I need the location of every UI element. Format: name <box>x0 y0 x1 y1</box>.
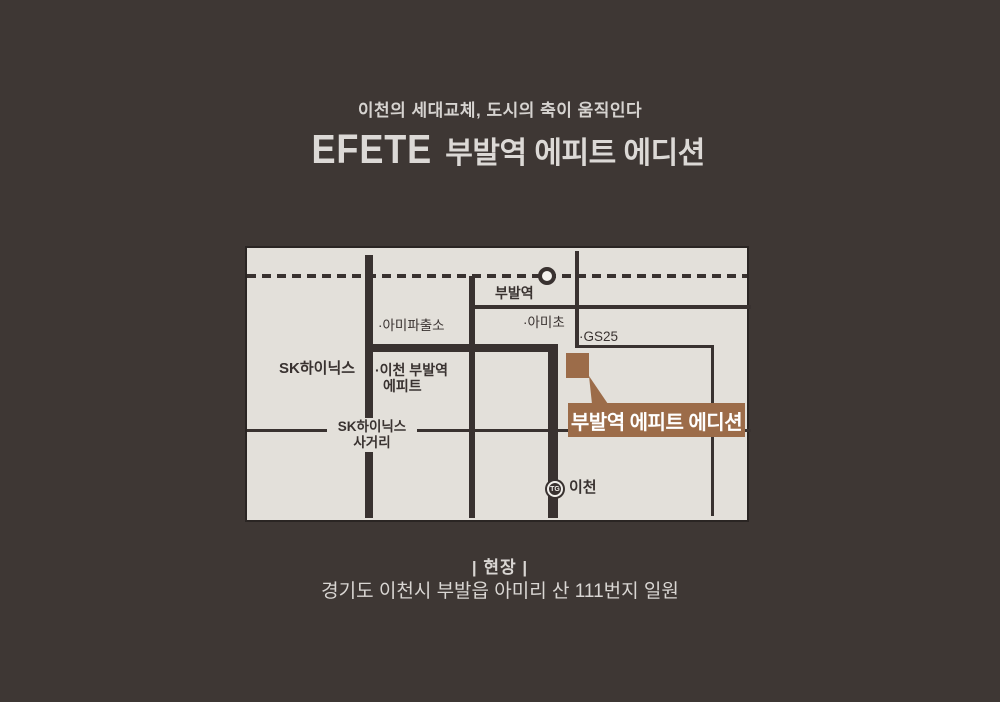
label-bubal-station: 부발역 <box>495 285 534 301</box>
site-callout-badge: 부발역 에피트 에디션 <box>568 403 745 437</box>
section-label: | 현장 | <box>0 553 1000 578</box>
label-gs25: ·GS25 <box>579 329 618 345</box>
label-ami-elementary: ·아미초 <box>523 315 565 331</box>
road-horizontal-east <box>577 345 714 348</box>
station-marker-icon <box>538 267 556 285</box>
label-epit-line1: ·이천 부발역 <box>375 362 448 378</box>
page-title: EFETE 부발역 에피트 에디션 <box>0 126 1000 173</box>
label-epit-complex: ·이천 부발역 에피트 <box>375 362 448 394</box>
label-sk-crossroad: SK하이닉스 사거리 <box>327 418 417 452</box>
tollgate-tg-text: TG <box>547 481 563 497</box>
label-ami-police: ·아미파출소 <box>378 318 445 334</box>
road-horizontal-north <box>469 305 751 309</box>
subtitle-text: 이천의 세대교체, 도시의 축이 움직인다 <box>0 96 1000 121</box>
label-icheon-tollgate: 이천 <box>569 480 597 496</box>
site-address: 경기도 이천시 부발읍 아미리 산 111번지 일원 <box>0 576 1000 603</box>
label-sk-crossroad-line1: SK하이닉스 <box>331 419 413 435</box>
tollgate-icon: TG <box>545 479 565 499</box>
road-horizontal-main <box>365 344 558 352</box>
railway-dashed-line <box>247 274 747 278</box>
label-sk-hynix: SK하이닉스 <box>279 361 355 377</box>
title-korean: 부발역 에피트 에디션 <box>445 128 705 172</box>
label-epit-line2: 에피트 <box>383 378 448 394</box>
site-marker <box>566 353 589 378</box>
location-map: 부발역 ·아미파출소 ·아미초 ·GS25 SK하이닉스 ·이천 부발역 에피트… <box>245 246 749 522</box>
brand-logotype: EFETE <box>312 126 433 173</box>
road-vertical-center <box>469 276 475 518</box>
label-sk-crossroad-line2: 사거리 <box>331 435 413 451</box>
promo-page: 이천의 세대교체, 도시의 축이 움직인다 EFETE 부발역 에피트 에디션 … <box>0 0 1000 702</box>
road-vertical-west <box>365 255 373 518</box>
